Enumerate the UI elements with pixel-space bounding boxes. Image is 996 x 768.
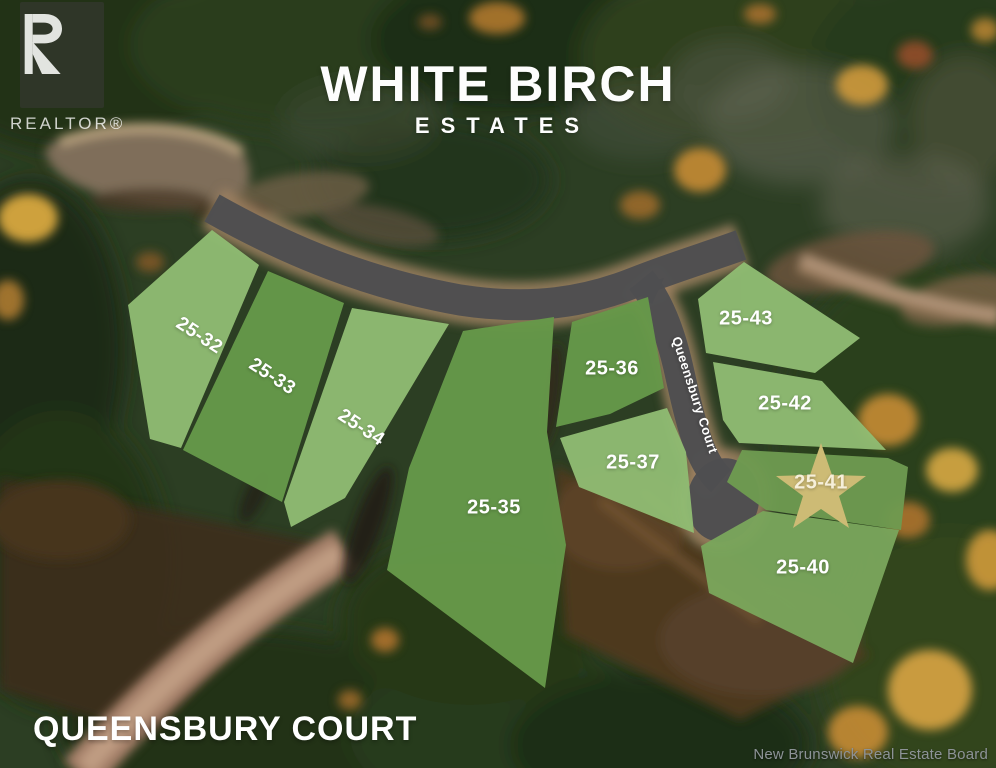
realtor-logo-label: REALTOR® (10, 114, 122, 134)
development-title: WHITE BIRCH ESTATES (320, 58, 675, 139)
lot-25-40-label: 25-40 (776, 557, 830, 580)
street-banner: QUEENSBURY COURT (33, 710, 417, 749)
title-main: WHITE BIRCH (320, 58, 675, 110)
realtor-r-icon (10, 2, 66, 86)
realtor-logo: REALTOR® (10, 2, 122, 134)
lot-25-43-label: 25-43 (719, 308, 773, 331)
lot-25-41-label: 25-41 (794, 472, 848, 495)
realtor-logo-box (20, 2, 104, 108)
lot-25-36-label: 25-36 (585, 358, 639, 381)
listing-map-image: REALTOR® WHITE BIRCH ESTATES 25-32 25-33… (0, 0, 996, 768)
lot-25-42-label: 25-42 (758, 393, 812, 416)
attribution-text: New Brunswick Real Estate Board (753, 746, 988, 763)
lot-25-35-label: 25-35 (467, 497, 521, 520)
lot-25-37-label: 25-37 (606, 452, 660, 475)
title-subtitle: ESTATES (320, 113, 675, 139)
